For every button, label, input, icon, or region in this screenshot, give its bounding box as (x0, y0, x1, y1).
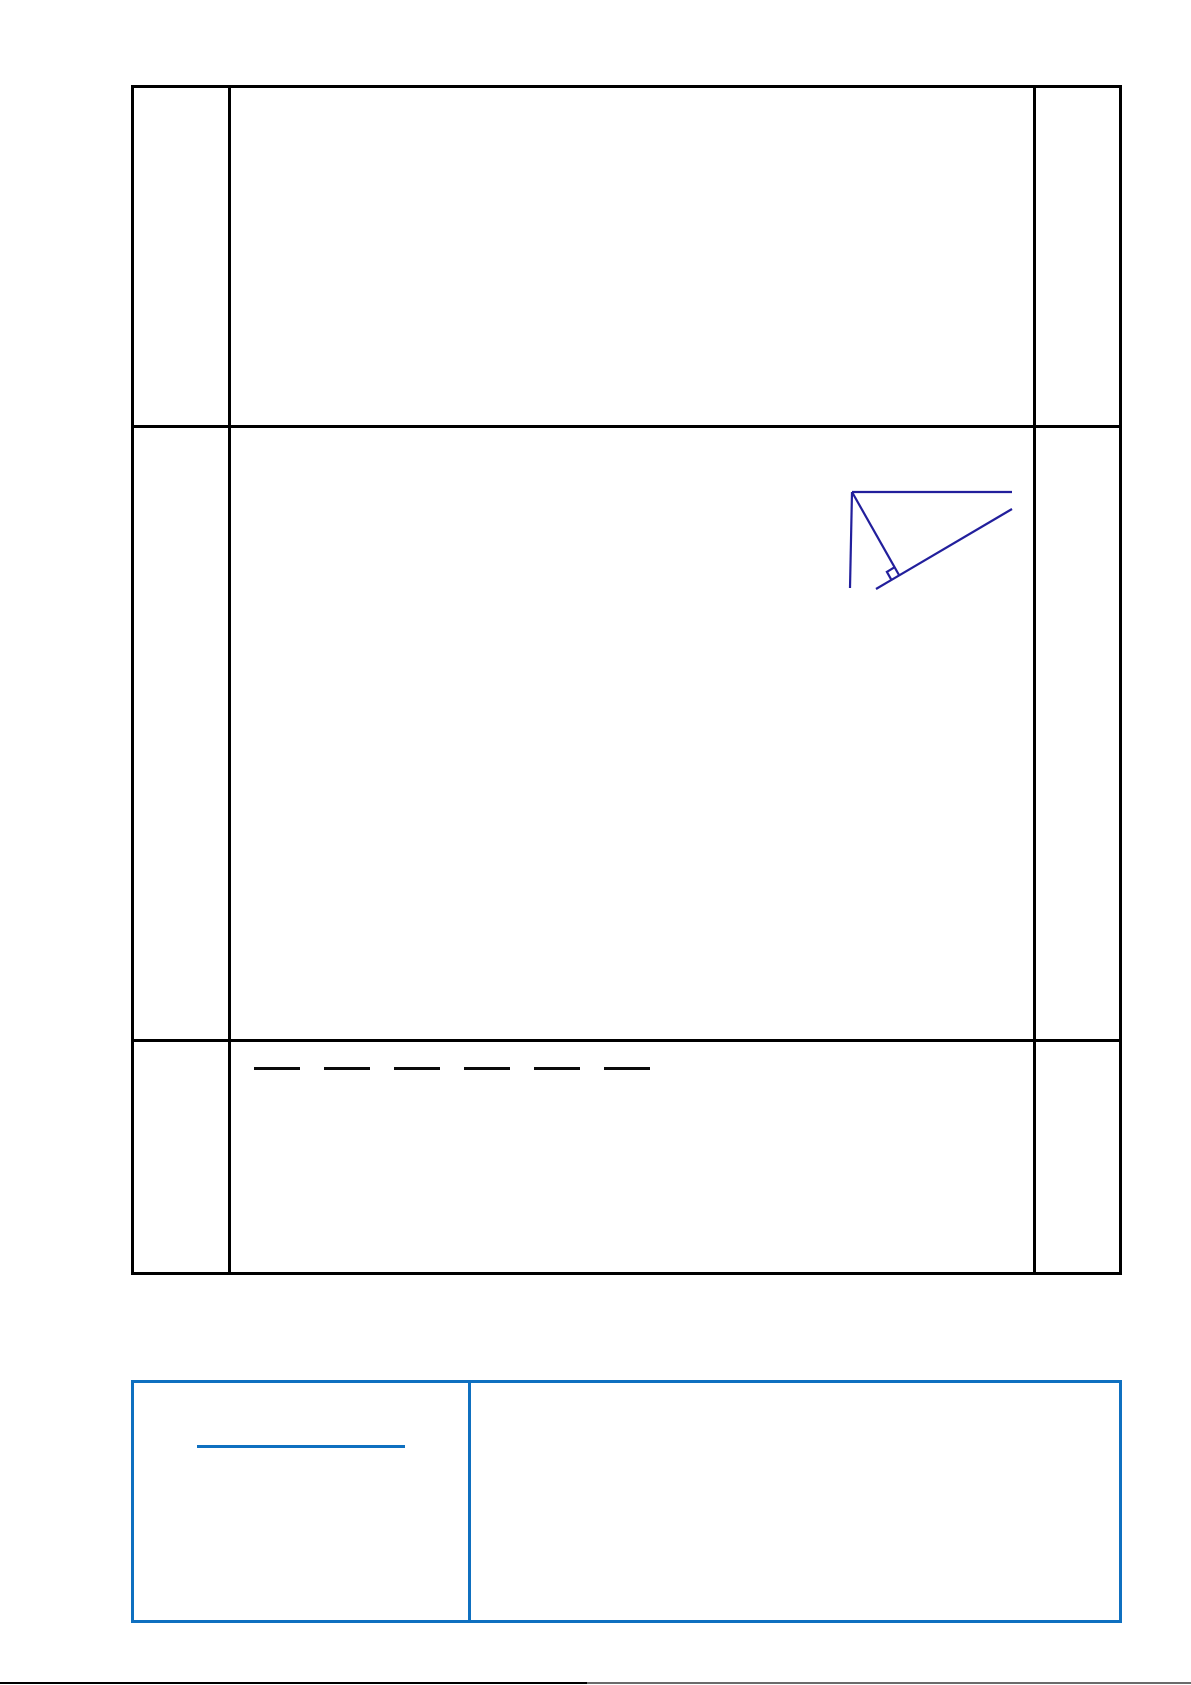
worksheet-cell-r2c3 (1036, 428, 1119, 1042)
worksheet-cell-r3c1 (134, 1042, 231, 1272)
callout-cell-right (471, 1383, 1119, 1620)
document-page (0, 0, 1191, 1685)
worksheet-cell-r3c3 (1036, 1042, 1119, 1272)
callout-cell-left (134, 1383, 471, 1620)
page-bottom-edge-line-left (0, 1682, 587, 1684)
worksheet-cell-r1c3 (1036, 88, 1119, 428)
geometry-figure (770, 440, 1030, 600)
worksheet-cell-r1c2 (231, 88, 1036, 428)
figure-perpendicular-segment (852, 492, 899, 575)
callout-table (131, 1380, 1122, 1623)
worksheet-cell-r1c1 (134, 88, 231, 428)
worksheet-table (131, 85, 1122, 1275)
figure-vertical-segment (850, 492, 852, 588)
worksheet-cell-r2c1 (134, 428, 231, 1042)
dashed-answer-line (254, 1067, 652, 1070)
figure-inclined-line (876, 509, 1012, 589)
worksheet-cell-r3c2 (231, 1042, 1036, 1272)
page-bottom-edge-line-right (587, 1682, 1191, 1684)
blue-answer-underline (197, 1445, 405, 1448)
